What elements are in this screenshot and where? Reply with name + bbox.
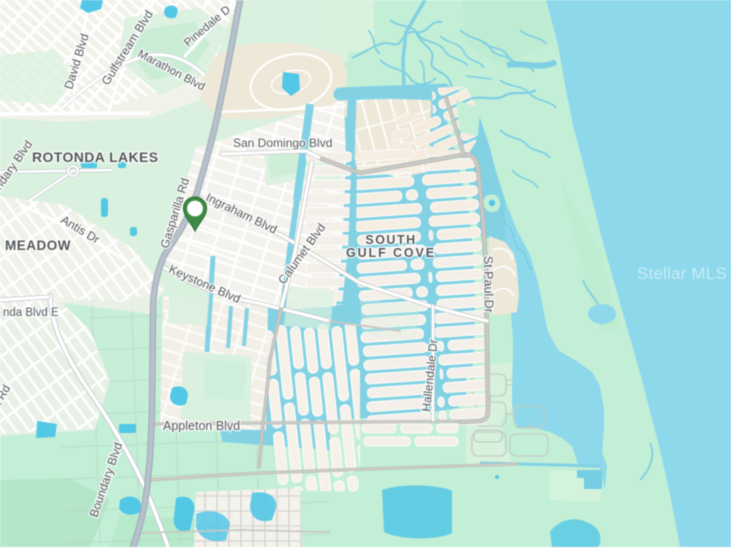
svg-text:Appleton Blvd: Appleton Blvd — [163, 419, 240, 433]
svg-text:Stellar MLS: Stellar MLS — [637, 264, 727, 283]
svg-text:MEADOW: MEADOW — [5, 238, 71, 253]
svg-text:GULF COVE: GULF COVE — [346, 246, 436, 260]
svg-text:SOUTH: SOUTH — [365, 233, 416, 247]
svg-text:nda Blvd E: nda Blvd E — [3, 307, 59, 319]
svg-text:St Paul Dr: St Paul Dr — [481, 256, 496, 313]
svg-text:ROTONDA LAKES: ROTONDA LAKES — [32, 149, 159, 165]
svg-text:San Domingo Blvd: San Domingo Blvd — [233, 136, 332, 150]
